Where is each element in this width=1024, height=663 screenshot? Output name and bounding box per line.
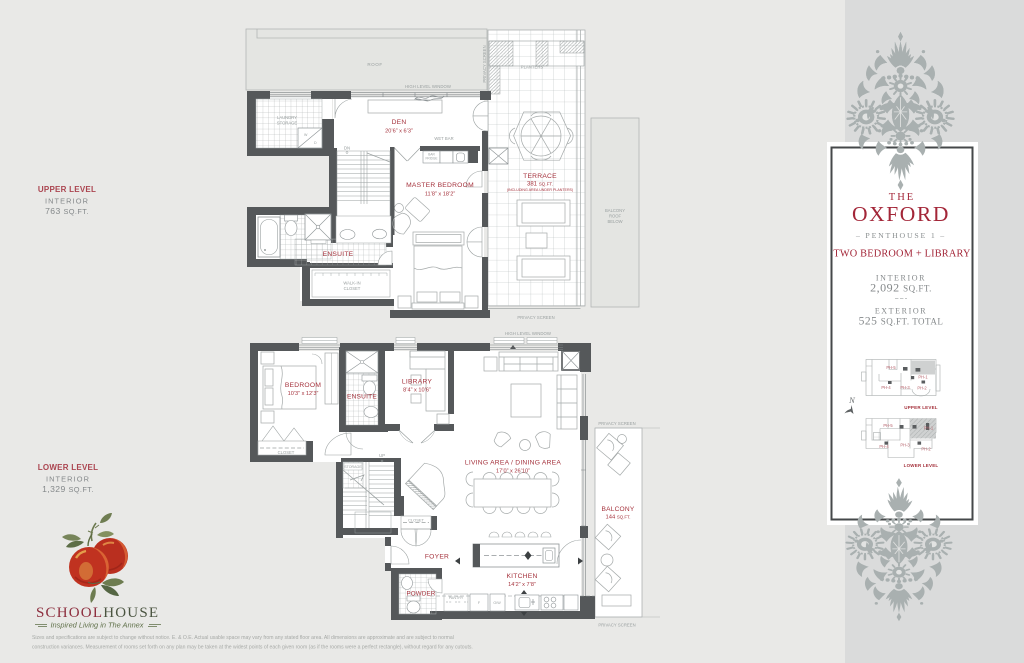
- svg-text:10’3” x 12’3”: 10’3” x 12’3”: [288, 391, 319, 397]
- svg-text:FRIDGE: FRIDGE: [425, 157, 437, 161]
- svg-text:HIGH LEVEL WINDOW: HIGH LEVEL WINDOW: [405, 84, 452, 89]
- svg-text:525 SQ.FT. TOTAL: 525 SQ.FT. TOTAL: [859, 316, 944, 328]
- svg-text:ENSUITE: ENSUITE: [323, 251, 354, 258]
- svg-text:20’6” x 6’3”: 20’6” x 6’3”: [385, 129, 413, 135]
- svg-text:O/W: O/W: [493, 601, 501, 605]
- svg-text:1,329 SQ.FT.: 1,329 SQ.FT.: [42, 484, 94, 494]
- svg-text:PH-2: PH-2: [917, 386, 927, 391]
- svg-text:14’2” x 7’8”: 14’2” x 7’8”: [508, 582, 536, 588]
- svg-text:UPPER LEVEL: UPPER LEVEL: [38, 185, 96, 194]
- svg-text:LOWER LEVEL: LOWER LEVEL: [38, 463, 99, 472]
- svg-text:PH-4: PH-4: [881, 385, 891, 390]
- svg-text:CLOSET: CLOSET: [408, 518, 425, 523]
- svg-text:EXTERIOR: EXTERIOR: [875, 307, 927, 316]
- svg-text:PANTRY: PANTRY: [449, 596, 464, 600]
- svg-text:PRIVACY SCREEN: PRIVACY SCREEN: [598, 421, 635, 426]
- svg-text:PRIVACY SCREEN: PRIVACY SCREEN: [517, 315, 554, 320]
- svg-text:INTERIOR: INTERIOR: [46, 475, 90, 484]
- svg-text:UPPER LEVEL: UPPER LEVEL: [904, 405, 938, 410]
- svg-text:POWDER: POWDER: [406, 591, 435, 598]
- svg-text:BEDROOM: BEDROOM: [285, 382, 321, 389]
- svg-text:INTERIOR: INTERIOR: [45, 197, 89, 206]
- svg-text:TWO BEDROOM + LIBRARY: TWO BEDROOM + LIBRARY: [833, 249, 971, 260]
- svg-text:ROOF: ROOF: [367, 62, 382, 67]
- svg-text:MASTER BEDROOM: MASTER BEDROOM: [406, 182, 474, 189]
- svg-text:ENSUITE: ENSUITE: [347, 394, 377, 401]
- svg-text:DN: DN: [344, 146, 350, 151]
- svg-text:763 SQ.FT.: 763 SQ.FT.: [45, 206, 89, 216]
- svg-text:D: D: [314, 141, 317, 145]
- svg-text:PRIVACY SCREEN: PRIVACY SCREEN: [598, 623, 635, 628]
- svg-text:BALCONY: BALCONY: [605, 208, 625, 213]
- svg-text:WET BAR: WET BAR: [434, 136, 453, 141]
- svg-text:LAUNDRY: LAUNDRY: [277, 115, 297, 120]
- svg-text:PH-1: PH-1: [918, 375, 928, 380]
- svg-text:STORAGE: STORAGE: [277, 121, 298, 126]
- svg-text:Inspired Living in The Annex: Inspired Living in The Annex: [51, 621, 144, 630]
- svg-text:ROOF: ROOF: [609, 214, 622, 219]
- svg-text:BELOW: BELOW: [607, 219, 622, 224]
- svg-text:TERRACE: TERRACE: [523, 173, 557, 180]
- svg-text:SCHOOLHOUSE: SCHOOLHOUSE: [36, 605, 159, 621]
- svg-text:PH-5: PH-5: [886, 365, 896, 370]
- svg-text:LIBRARY: LIBRARY: [402, 379, 433, 386]
- svg-text:Sizes and specifications are s: Sizes and specifications are subject to …: [32, 635, 454, 641]
- svg-text:PH-4: PH-4: [879, 444, 889, 449]
- svg-text:KITCHEN: KITCHEN: [506, 573, 537, 580]
- svg-text:FOYER: FOYER: [425, 554, 449, 561]
- svg-text:PRIVACY SCREEN: PRIVACY SCREEN: [482, 45, 487, 82]
- svg-text:LOWER LEVEL: LOWER LEVEL: [904, 463, 939, 468]
- svg-text:construction variances. Measur: construction variances. Measurement of r…: [32, 645, 473, 651]
- svg-text:PH-5: PH-5: [883, 423, 893, 428]
- svg-text:LIVING AREA / DINING AREA: LIVING AREA / DINING AREA: [465, 460, 561, 467]
- svg-text:PH-1: PH-1: [924, 426, 934, 431]
- svg-text:11’8” x 18’2”: 11’8” x 18’2”: [425, 192, 456, 198]
- svg-text:OXFORD: OXFORD: [852, 202, 950, 226]
- svg-text:HIGH LEVEL WINDOW: HIGH LEVEL WINDOW: [505, 331, 552, 336]
- svg-text:(INCLUDING AREA UNDER PLANTERS: (INCLUDING AREA UNDER PLANTERS): [507, 188, 573, 192]
- svg-text:17’0” x 26’10”: 17’0” x 26’10”: [496, 469, 530, 475]
- svg-text:WALK-IN: WALK-IN: [343, 281, 360, 286]
- svg-text:W: W: [304, 133, 308, 137]
- svg-text:PH-3: PH-3: [900, 385, 910, 390]
- svg-text:CLOSET: CLOSET: [344, 286, 361, 291]
- svg-text:BALCONY: BALCONY: [602, 506, 635, 513]
- svg-text:PH-3: PH-3: [900, 443, 910, 448]
- svg-text:CLOSET: CLOSET: [278, 450, 295, 455]
- svg-text:2,092 SQ.FT.: 2,092 SQ.FT.: [870, 281, 932, 295]
- svg-text:8’4” x 10’6”: 8’4” x 10’6”: [403, 388, 431, 394]
- svg-text:DEN: DEN: [392, 119, 407, 126]
- svg-text:PH-2: PH-2: [921, 447, 931, 452]
- svg-text:PLANTERS: PLANTERS: [521, 65, 544, 70]
- svg-text:– PENTHOUSE 1 –: – PENTHOUSE 1 –: [855, 231, 946, 240]
- svg-text:STORAGE: STORAGE: [344, 465, 362, 469]
- svg-text:UP: UP: [379, 453, 385, 458]
